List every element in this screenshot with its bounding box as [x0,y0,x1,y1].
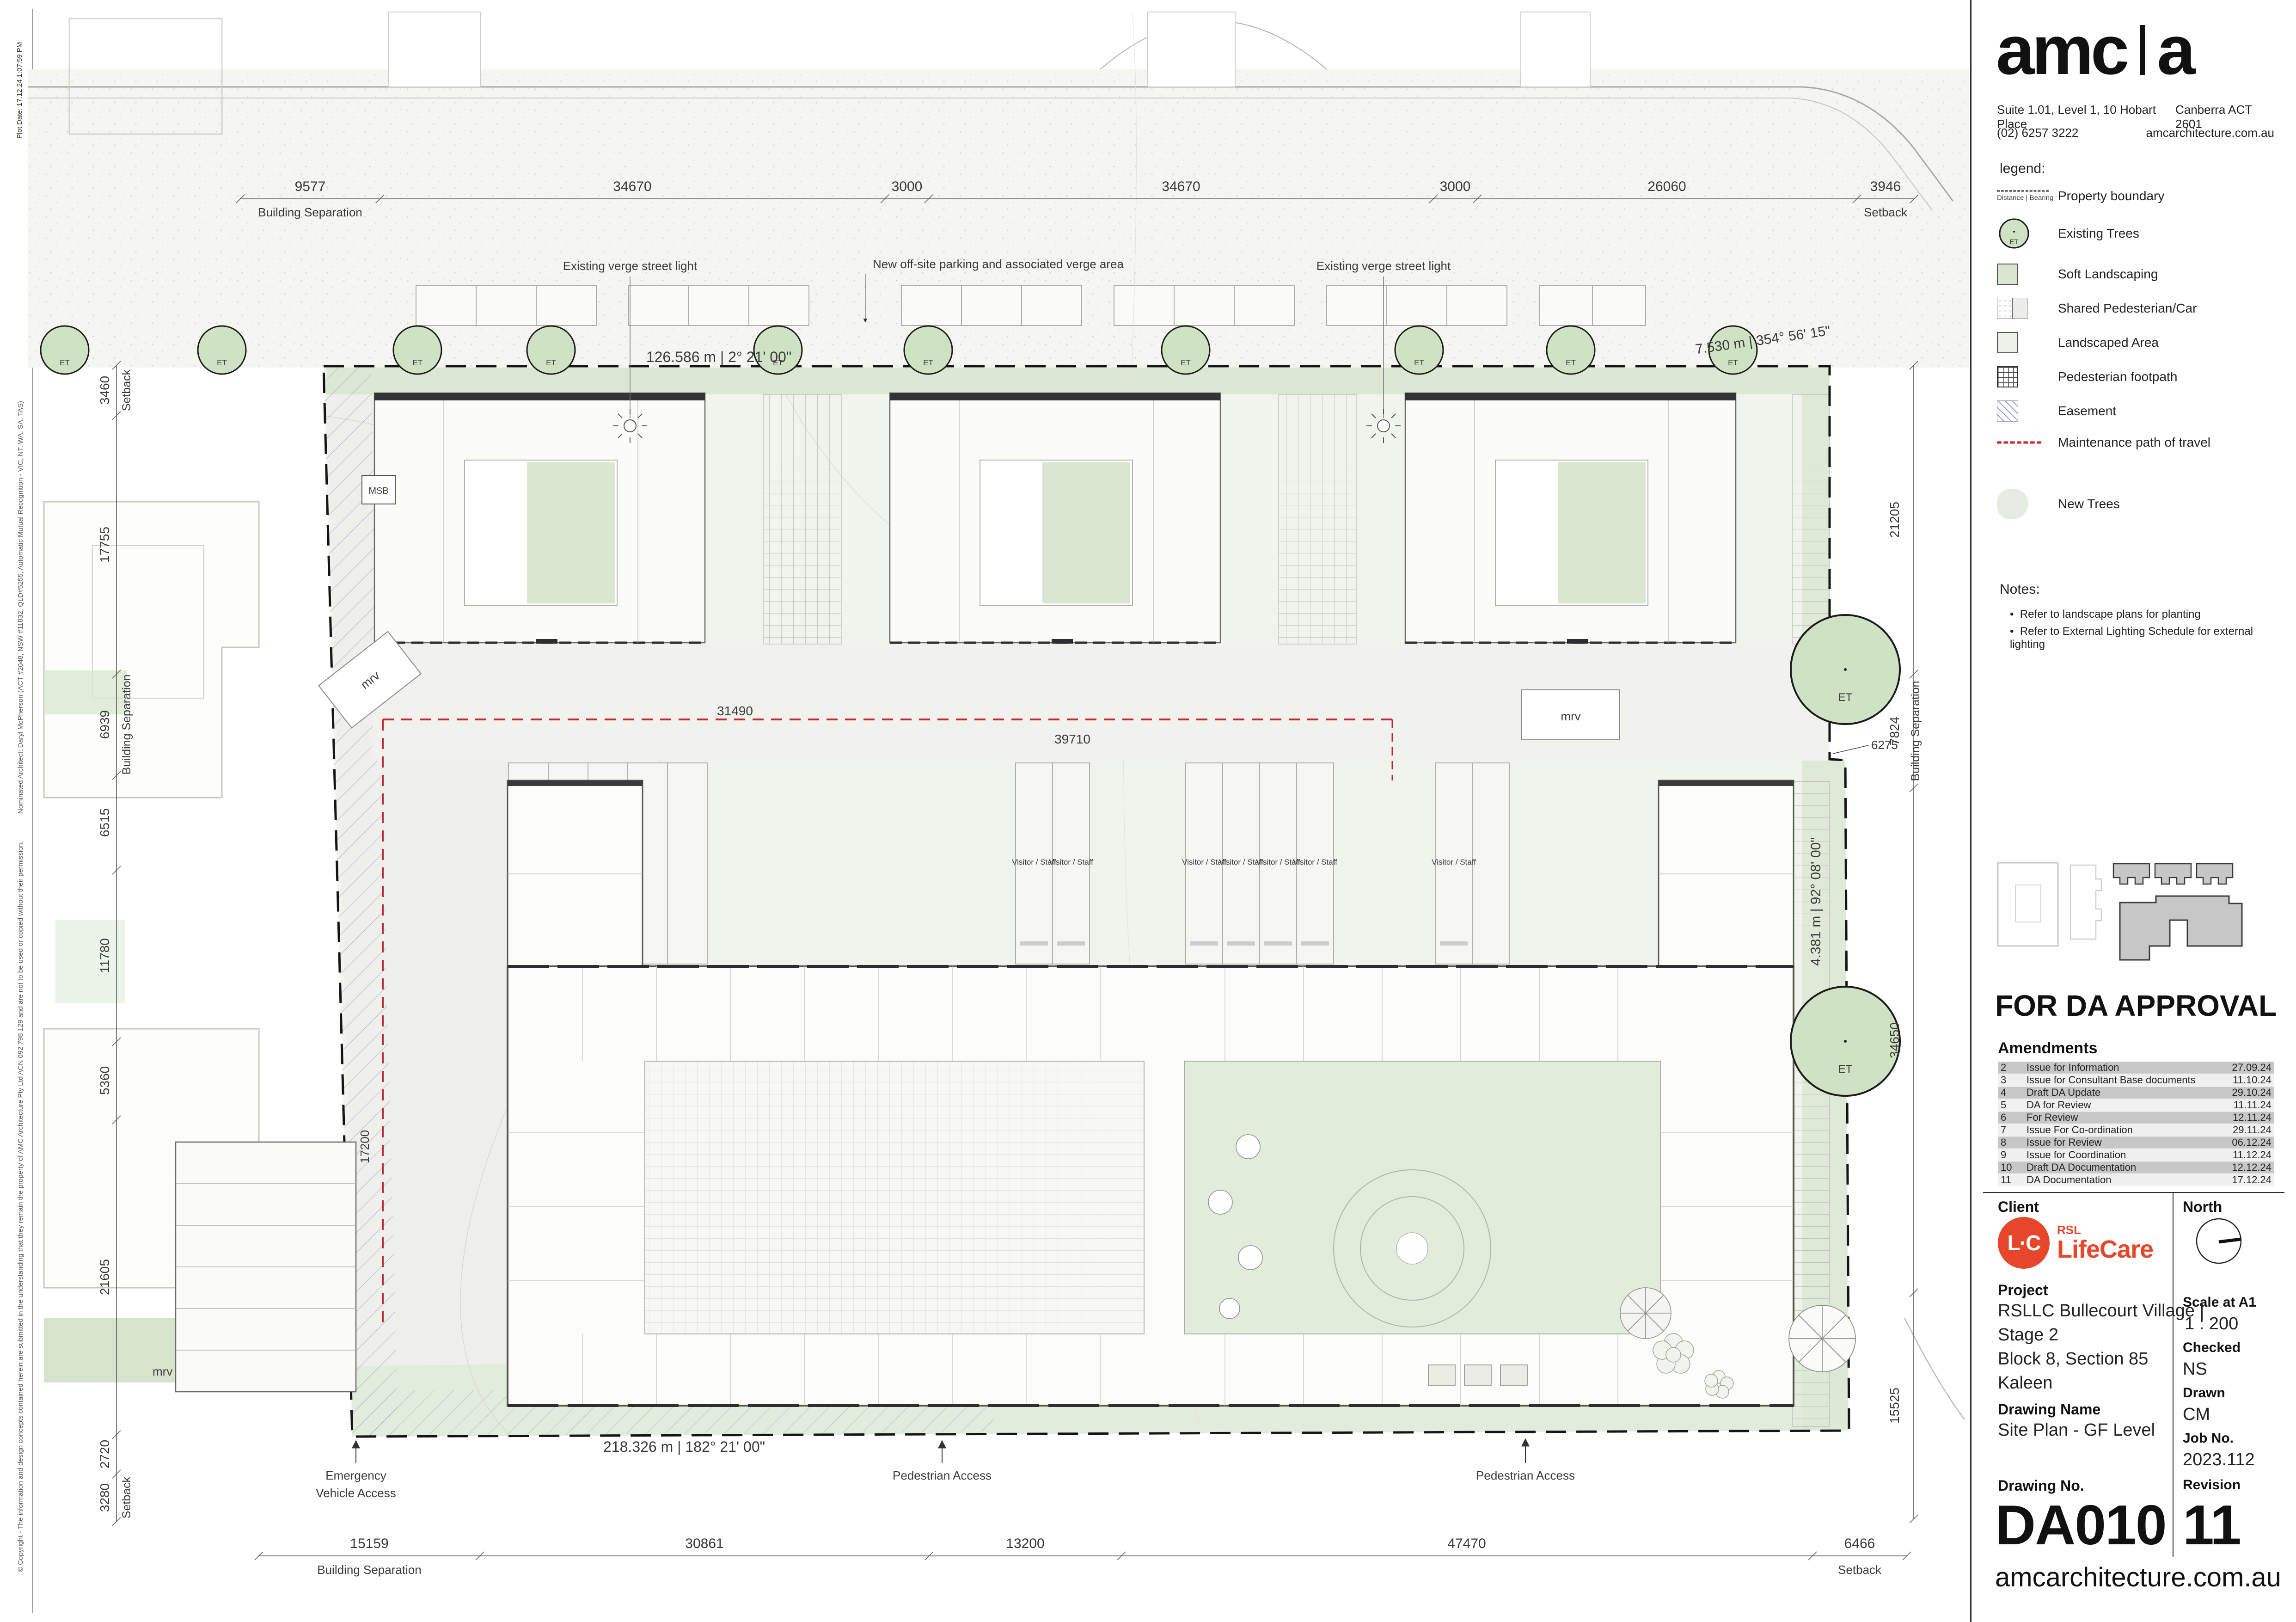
legend-label: Shared Pedesterian/Car [2058,301,2197,316]
amendment-row: 10Draft DA Documentation12.12.24 [1998,1161,2274,1173]
building-tower-left [508,780,643,966]
svg-text:3000: 3000 [892,179,923,194]
scale-label: Scale at A1 [2183,1295,2256,1310]
svg-text:4.381 m | 92° 08' 00": 4.381 m | 92° 08' 00" [1808,837,1824,966]
legend-label: Landscaped Area [2058,335,2159,350]
amendment-row: 9Issue for Coordination11.12.24 [1998,1149,2274,1161]
legend-label: Easement [2058,404,2116,418]
legend-item-existing-trees: ET Existing Trees [1997,210,2265,257]
amendment-row: 2Issue for Information27.09.24 [1998,1062,2274,1074]
scale-value: 1 : 200 [2185,1314,2238,1334]
checked-label: Checked [2183,1340,2241,1356]
dim-31490: 31490 [717,704,753,718]
building-top-2 [890,393,1220,644]
svg-text:Building Separation: Building Separation [317,1563,422,1577]
rsl-text: RSL [2057,1224,2153,1236]
firm-logo-right: a [2157,22,2192,78]
landscaped-area-swatch-icon [1997,332,2018,353]
notes-title: Notes: [2000,582,2040,597]
note-item: • Refer to External Lighting Schedule fo… [2010,625,2269,651]
legend-item-easement: Easement [1997,395,2265,427]
svg-text:ET: ET [1838,691,1853,704]
mrv-box-right: mrv [1522,690,1620,740]
amendment-row: 8Issue for Review06.12.24 [1998,1137,2274,1149]
firm-phone: (02) 6257 3222 [1997,126,2078,140]
neighbor-garden [44,670,127,714]
amendment-row: 4Draft DA Update29.10.24 [1998,1087,2274,1099]
note-item: • Refer to landscape plans for planting [2010,608,2269,621]
titleblock-hline [1983,1192,2284,1193]
svg-text:Setback: Setback [1864,205,1908,219]
svg-text:126.586 m | 2° 21' 00": 126.586 m | 2° 21' 00" [646,349,791,365]
svg-text:Building Separation: Building Separation [1909,681,1922,781]
svg-text:7824: 7824 [1887,717,1902,745]
revision-label: Revision [2183,1477,2241,1493]
key-plan [1994,858,2281,974]
svg-text:9577: 9577 [295,179,326,194]
drawing-name-label: Drawing Name [1998,1401,2100,1418]
svg-text:ET: ET [1566,358,1576,367]
svg-text:34650: 34650 [1887,1022,1902,1058]
svg-text:21205: 21205 [1887,502,1902,538]
drawn-value: CM [2183,1405,2210,1425]
north-label: North [2183,1198,2222,1216]
amendment-row: 11DA Documentation17.12.24 [1998,1174,2274,1186]
svg-text:21605: 21605 [98,1259,112,1295]
legend-item-new-trees: New Trees [1997,481,2265,527]
svg-text:30861: 30861 [685,1536,723,1551]
drawn-label: Drawn [2183,1385,2225,1401]
svg-text:Setback: Setback [1838,1563,1882,1577]
svg-text:218.326 m | 182° 21' 00": 218.326 m | 182° 21' 00" [603,1438,765,1455]
svg-text:ET: ET [1414,358,1424,367]
svg-text:34670: 34670 [613,179,651,194]
titleblock-vline [2173,1192,2174,1557]
soft-landscaping-swatch-icon [1997,264,2018,285]
svg-text:Building Separation: Building Separation [120,675,133,775]
firm-website[interactable]: amcarchitecture.com.au [2146,126,2274,140]
firm-logo: amc a [1996,22,2193,78]
svg-text:17755: 17755 [98,527,112,563]
firm-logo-left: amc [1996,22,2126,78]
building-main [508,966,1794,1406]
shared-ped-car-swatch-icon [1997,298,2027,319]
project-line: Block 8, Section 85 [1998,1349,2148,1369]
svg-text:Visitor / Staff: Visitor / Staff [1049,858,1093,866]
legend-item-property-boundary: Distance | Bearing Property boundary [1997,181,2265,211]
project-line: Stage 2 [1998,1325,2058,1345]
project-line: RSLLC Bullecourt Village | [1998,1301,2204,1321]
approval-stamp: FOR DA APPROVAL [1995,989,2277,1023]
existing-tree-swatch-icon: ET [1997,216,2031,251]
svg-text:5360: 5360 [98,1066,112,1095]
building-top-1 [374,393,705,644]
legend-label: Existing Trees [2058,226,2139,241]
legend-label: Maintenance path of travel [2058,435,2210,450]
legend-label: Property boundary [2058,189,2164,203]
svg-text:13200: 13200 [1006,1536,1044,1551]
mrv-label-bottom: mrv [153,1364,172,1378]
svg-text:New off-site parking and assoc: New off-site parking and associated verg… [873,257,1124,271]
carport-block [176,1142,356,1392]
svg-text:ET: ET [546,358,556,367]
svg-text:6466: 6466 [1844,1536,1875,1551]
drawing-no-label: Drawing No. [1998,1477,2084,1494]
ped-footpath-swatch-icon [1997,366,2018,387]
lifecare-text: LifeCare [2057,1237,2153,1262]
footer-website[interactable]: amcarchitecture.com.au [1995,1562,2281,1593]
site-plan-canvas: MSB mrv Visitor / Staff Visitor / Staff … [0,0,1969,1622]
checked-value: NS [2183,1359,2207,1379]
svg-text:6515: 6515 [98,808,112,837]
amendment-row: 3Issue for Consultant Base documents11.1… [1998,1074,2274,1086]
amendment-row: 7Issue For Co-ordination29.11.24 [1998,1124,2274,1136]
legend-label: Pedesterian footpath [2058,369,2177,384]
building-tower-right [1659,780,1794,966]
svg-text:15525: 15525 [1887,1388,1902,1424]
svg-text:3000: 3000 [1440,179,1471,194]
client-logo: L·C RSL LifeCare [1998,1217,2153,1269]
svg-text:ET: ET [412,358,422,367]
svg-text:Emergency: Emergency [325,1468,386,1482]
legend-label: New Trees [2058,497,2120,511]
maintenance-path-swatch-icon [1997,442,2041,444]
svg-text:MSB: MSB [368,486,388,496]
firm-logo-bar-icon [2140,25,2145,75]
amendment-row: 6For Review12.11.24 [1998,1112,2274,1124]
svg-text:ET: ET [217,358,227,367]
svg-text:47470: 47470 [1447,1536,1486,1551]
svg-text:Visitor / Staff: Visitor / Staff [1432,858,1476,866]
legend-title: legend: [2000,161,2045,177]
amendments-title: Amendments [1998,1039,2097,1057]
building-top-3 [1405,393,1736,644]
legend-label: Soft Landscaping [2058,267,2158,282]
legend-item-soft-landscaping: Soft Landscaping [1997,258,2265,290]
dim-bottom [255,1552,1911,1560]
revision-value: 11 [2183,1493,2241,1557]
svg-text:Pedestrian Access: Pedestrian Access [893,1468,992,1482]
svg-text:ET: ET [1728,358,1738,367]
svg-text:mrv: mrv [1561,709,1580,723]
dim-39710: 39710 [1054,732,1090,746]
msb-box: MSB [362,475,395,504]
amendments-table: 2Issue for Information27.09.24 3Issue fo… [1998,1062,2274,1186]
svg-text:Vehicle Access: Vehicle Access [316,1486,396,1500]
dim-17200: 17200 [358,1130,372,1163]
svg-text:6939: 6939 [98,710,112,739]
drawing-no-value: DA010 [1995,1493,2166,1557]
svg-text:3946: 3946 [1870,179,1901,194]
legend-item-maintenance-path: Maintenance path of travel [1997,430,2265,455]
client-label: Client [1998,1198,2039,1216]
north-arrow-icon [2192,1214,2247,1270]
svg-text:2720: 2720 [98,1440,112,1468]
new-trees-swatch-icon [1997,489,2028,519]
drawing-name-value: Site Plan - GF Level [1998,1420,2155,1440]
legend-item-landscaped-area: Landscaped Area [1997,326,2265,359]
svg-text:Pedestrian Access: Pedestrian Access [1476,1468,1575,1482]
svg-text:Setback: Setback [120,369,133,411]
svg-text:ET: ET [1838,1063,1853,1075]
legend-item-ped-footpath: Pedesterian footpath [1997,361,2265,393]
job-value: 2023.112 [2183,1450,2255,1470]
svg-text:26060: 26060 [1647,179,1686,194]
easement-swatch-icon [1997,400,2018,422]
titleblock-divider [1970,0,1971,1622]
property-boundary-swatch-icon: Distance | Bearing [1997,190,2053,202]
svg-text:34670: 34670 [1162,179,1200,194]
boundary-caption: Distance | Bearing [1997,194,2053,202]
job-label: Job No. [2183,1431,2234,1446]
svg-text:ET: ET [1181,358,1191,367]
svg-text:15159: 15159 [350,1536,388,1551]
svg-text:Building Separation: Building Separation [258,205,362,219]
svg-text:Existing verge street light: Existing verge street light [563,259,698,273]
rsl-lifecare-mark-icon: L·C [1998,1217,2050,1269]
amendment-row: 5DA for Review11.11.24 [1998,1099,2274,1111]
svg-text:ET: ET [60,358,70,367]
svg-text:ET: ET [923,358,933,367]
firm-contact-row: (02) 6257 3222 amcarchitecture.com.au [1997,126,2274,140]
drawing-sheet: Plot Date: 17.12.24 1:07:59 PM Nominated… [0,0,2296,1622]
project-line: Kaleen [1998,1373,2052,1393]
project-label: Project [1998,1282,2048,1299]
svg-text:Existing verge street light: Existing verge street light [1316,259,1451,273]
svg-text:Visitor / Staff: Visitor / Staff [1293,858,1337,866]
dim-right [1910,361,1918,1523]
neighbor-garden [44,1318,196,1382]
svg-text:3460: 3460 [98,376,112,405]
neighbor-garden [55,920,125,1003]
dim-bottom-labels: 15159 30861 13200 47470 6466 Building Se… [317,1536,1882,1577]
svg-text:ET: ET [2009,238,2018,246]
legend-item-shared-ped-car: Shared Pedesterian/Car [1997,292,2265,325]
svg-text:11780: 11780 [98,938,112,973]
svg-text:Setback: Setback [120,1476,133,1518]
dim-right-labels: 21205 7824 Building Separation 34650 155… [1887,502,1922,1424]
svg-text:3280: 3280 [98,1483,112,1512]
